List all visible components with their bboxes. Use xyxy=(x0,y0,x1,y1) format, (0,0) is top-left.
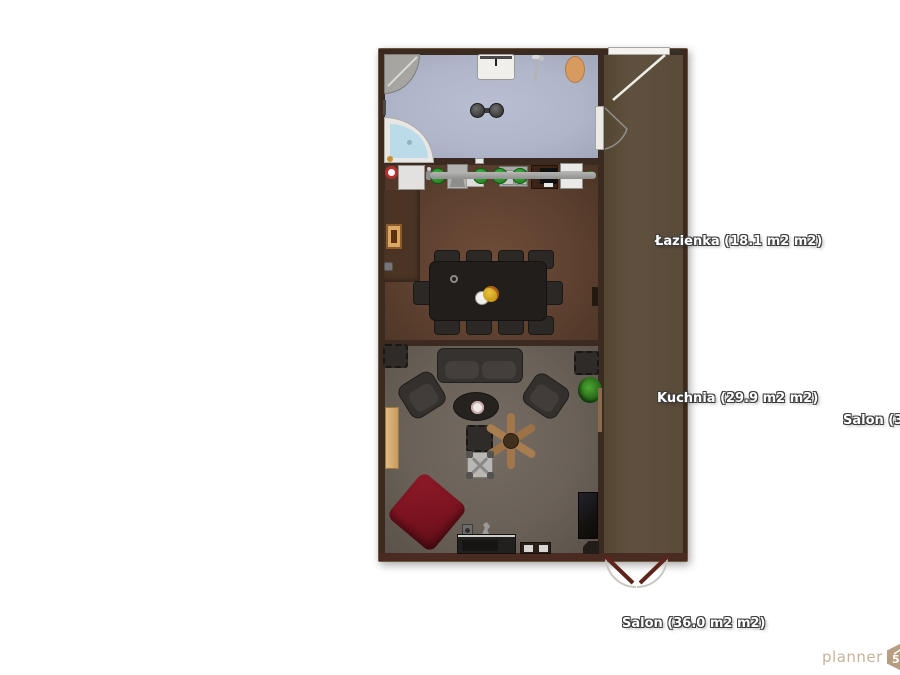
room-label-bathroom: Łazienka (18.1 m2 m2) xyxy=(655,234,822,249)
twin-knob-item[interactable] xyxy=(470,102,506,120)
smoke-detector[interactable] xyxy=(385,166,398,179)
breakfast-bar[interactable] xyxy=(430,172,596,179)
bathtub-tap xyxy=(387,156,393,162)
low-bench[interactable] xyxy=(520,542,551,554)
bathtub-drain xyxy=(407,140,412,145)
floorplan-canvas: Łazienka (18.1 m2 m2) Kuchnia (29.9 m2 m… xyxy=(0,0,900,675)
table-foot xyxy=(466,451,473,458)
bench-panel xyxy=(539,545,548,552)
room-label-kitchen: Kuchnia (29.9 m2 m2) xyxy=(657,391,818,406)
tv-stand-top xyxy=(458,535,515,537)
picture-figure xyxy=(391,230,397,243)
entry-door[interactable] xyxy=(608,47,670,55)
ottoman[interactable] xyxy=(383,344,408,368)
fan-hub xyxy=(503,433,519,449)
corridor-floor[interactable] xyxy=(604,55,683,553)
watermark-badge-text: 5d xyxy=(892,655,900,665)
dining-table[interactable] xyxy=(429,261,547,321)
room-label-salon: Salon (36.0 m2 m2) xyxy=(622,616,766,631)
table-foot xyxy=(487,451,494,458)
table-foot xyxy=(487,472,494,479)
salon-corridor-door[interactable] xyxy=(598,388,602,432)
wall-bench[interactable] xyxy=(385,407,399,469)
table-trinket xyxy=(450,275,458,283)
sofa-cushion xyxy=(445,361,479,379)
side-table[interactable] xyxy=(467,452,493,478)
washing-machine[interactable] xyxy=(398,165,425,190)
faucet-icon[interactable] xyxy=(530,55,546,83)
oval-rug[interactable] xyxy=(565,56,585,83)
room-label-salon-clipped: Salon (3 xyxy=(843,413,900,428)
watermark: planner 5d xyxy=(822,644,900,670)
armchair-cushion xyxy=(407,381,441,413)
wall-picture[interactable] xyxy=(386,224,402,249)
planner5d-logo-icon: 5d xyxy=(887,644,900,670)
wall-tv[interactable] xyxy=(578,492,598,539)
wall-rail-icon[interactable] xyxy=(383,100,386,115)
watermark-brand-text: planner xyxy=(822,648,883,666)
bottom-wall xyxy=(379,553,687,561)
wall-knob[interactable] xyxy=(384,262,393,271)
ottoman[interactable] xyxy=(574,351,599,375)
armchair-cushion xyxy=(528,382,561,414)
speaker-cone xyxy=(465,528,470,533)
toilet-flush xyxy=(495,59,497,66)
tv-stand[interactable] xyxy=(457,534,516,554)
fruit-bowl xyxy=(483,286,499,302)
wall-vent xyxy=(475,158,484,164)
sofa-cushion xyxy=(482,361,516,379)
wall-corner-mark xyxy=(672,49,679,53)
wall-radiator[interactable] xyxy=(592,287,598,306)
bathroom-door[interactable] xyxy=(595,106,604,150)
bench-panel xyxy=(524,545,533,552)
tv-stand-shelf xyxy=(462,540,498,551)
table-foot xyxy=(466,472,473,479)
sofa[interactable] xyxy=(437,348,523,383)
toilet[interactable] xyxy=(477,54,515,80)
oven-handle xyxy=(544,183,553,187)
